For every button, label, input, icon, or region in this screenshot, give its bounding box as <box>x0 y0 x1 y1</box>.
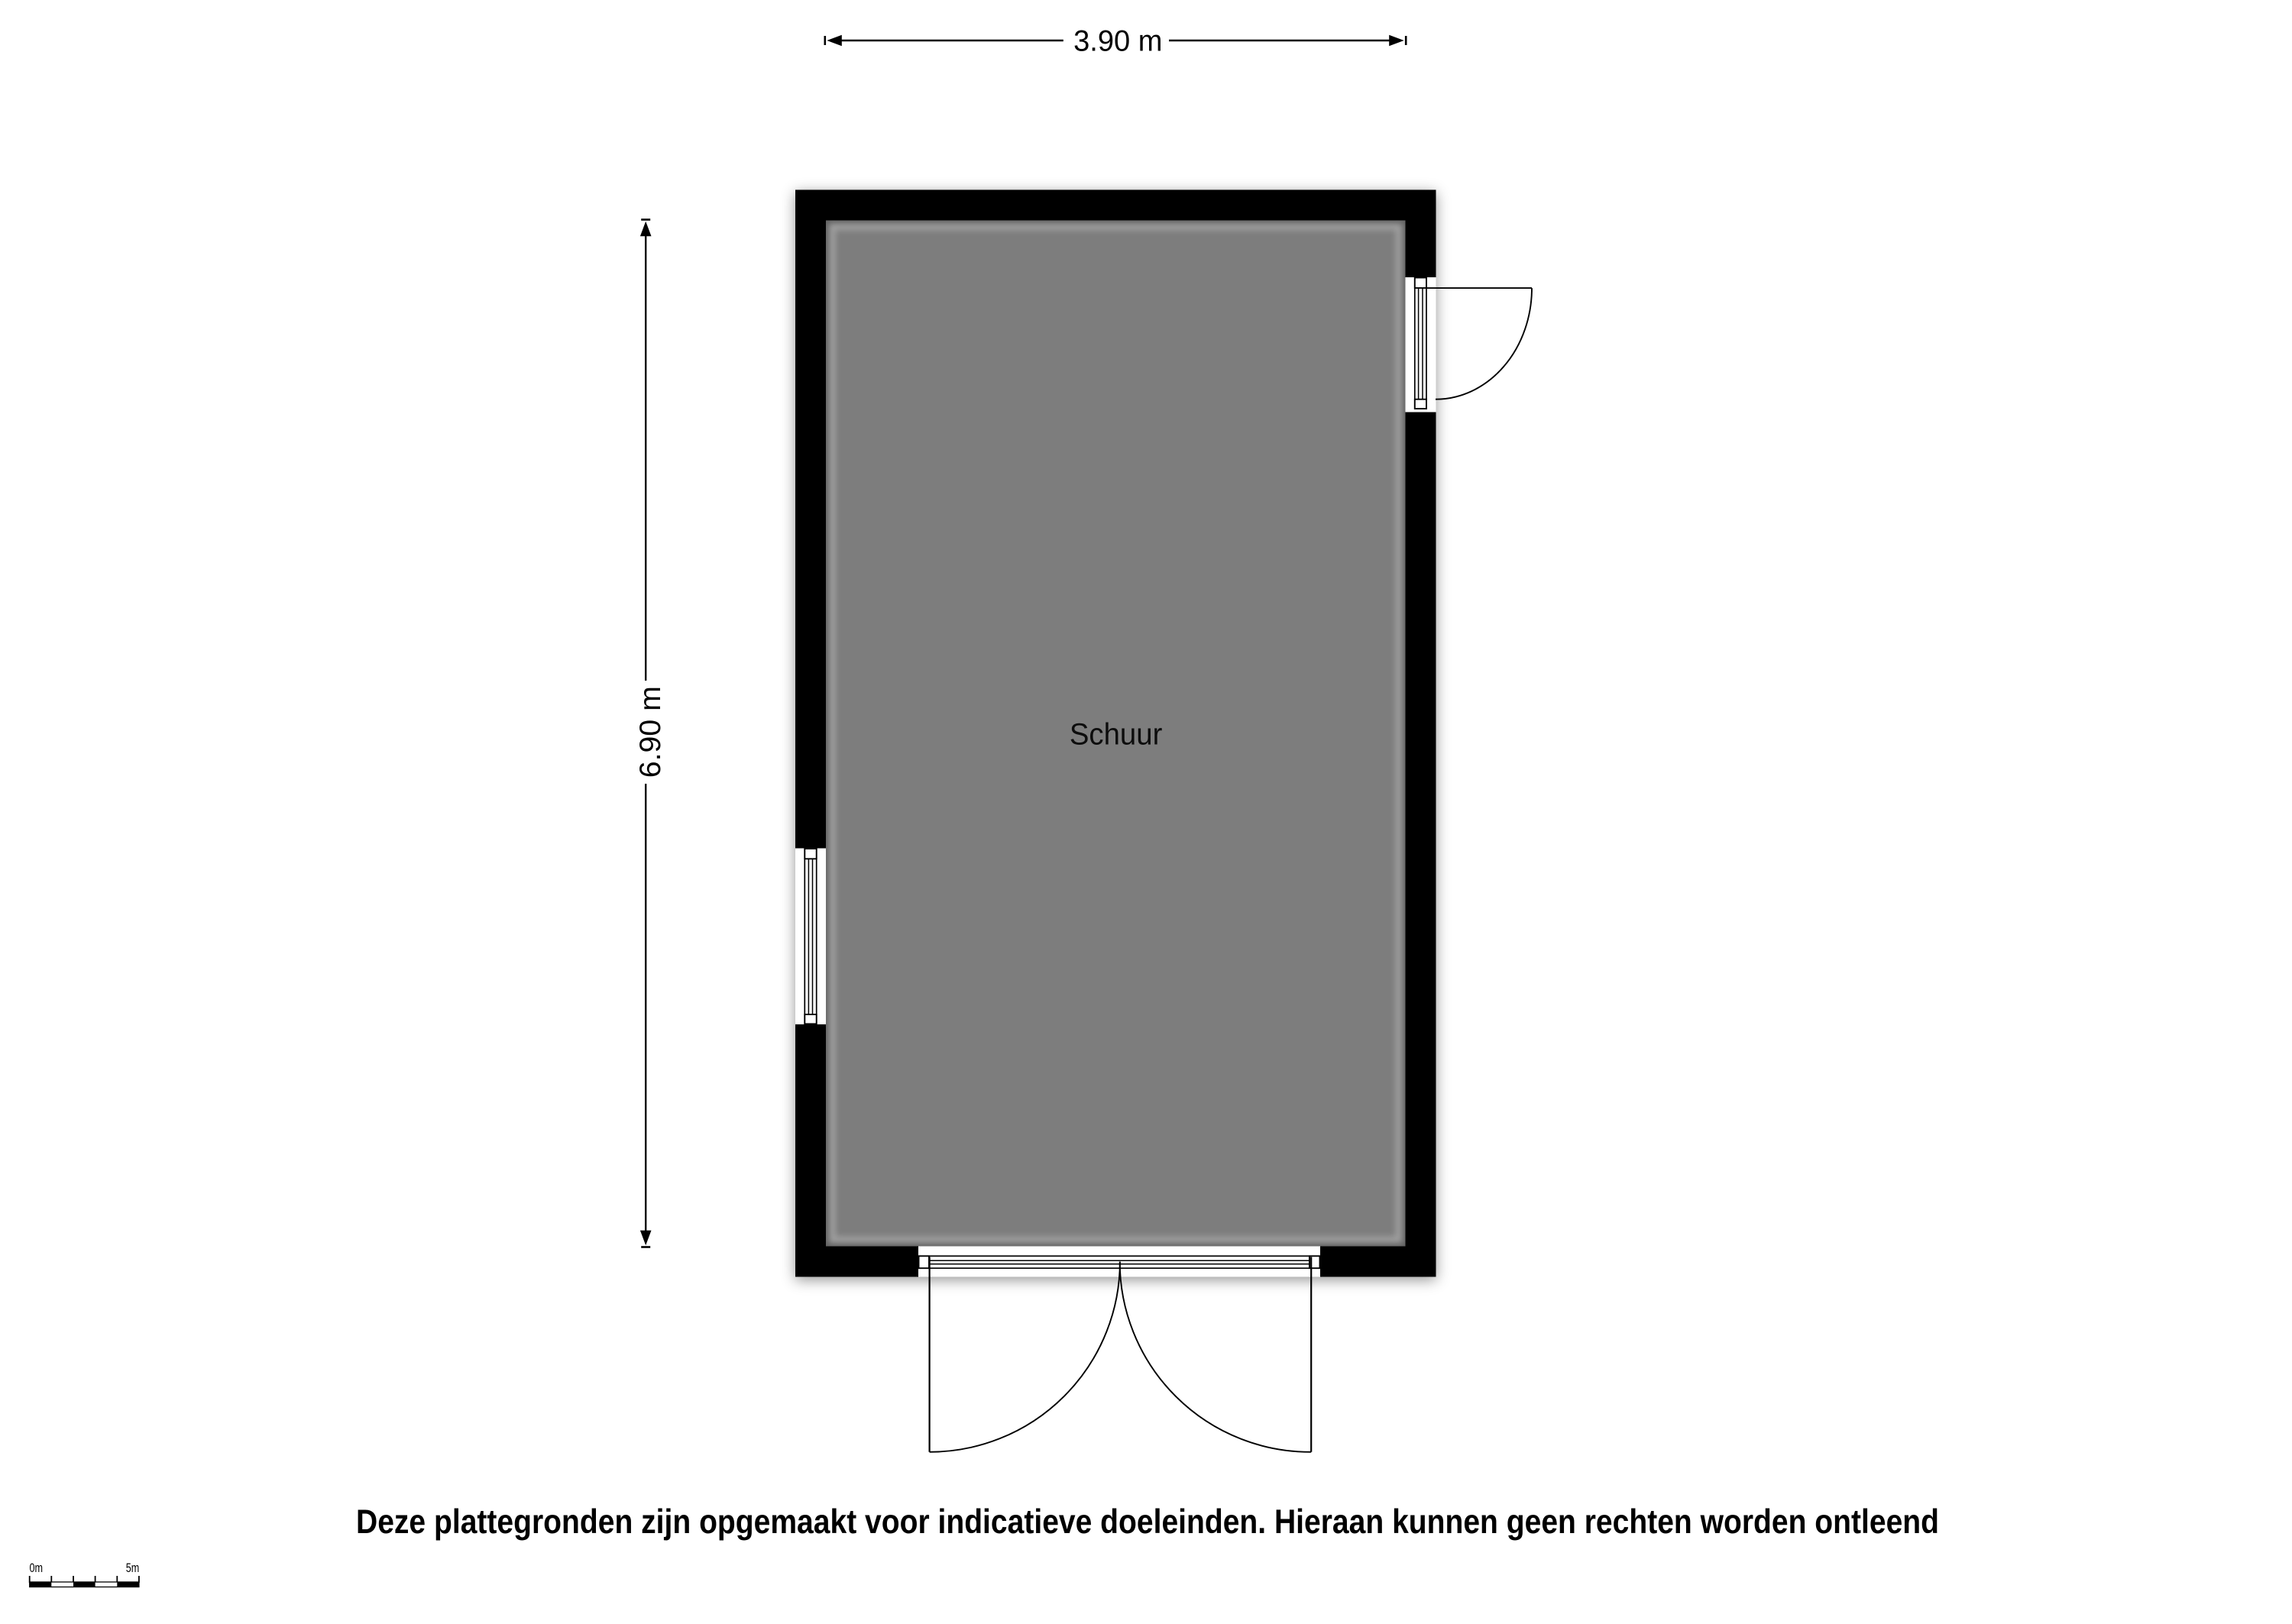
svg-text:Schuur: Schuur <box>1070 718 1163 752</box>
svg-text:3.90 m: 3.90 m <box>1073 24 1162 58</box>
svg-text:5m: 5m <box>126 1561 140 1575</box>
svg-text:Deze plattegronden zijn opgema: Deze plattegronden zijn opgemaakt voor i… <box>356 1503 1939 1541</box>
svg-text:6.90 m: 6.90 m <box>633 686 667 778</box>
svg-text:0m: 0m <box>30 1561 44 1575</box>
